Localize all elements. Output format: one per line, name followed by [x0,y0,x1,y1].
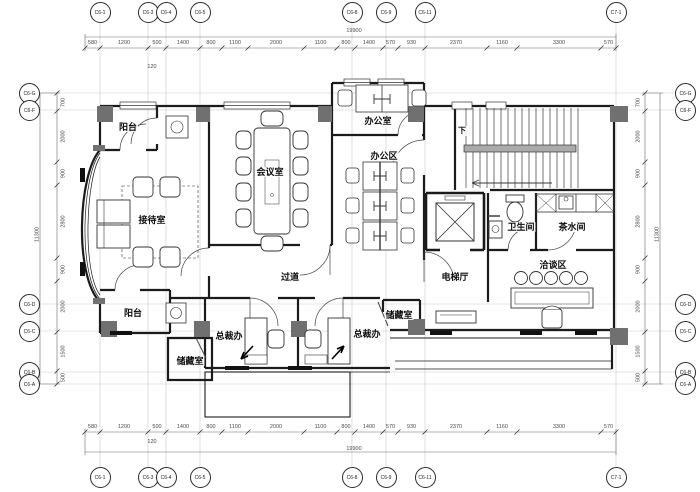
dim-left: 2800 [61,208,68,236]
dim-top: 2000 [262,40,290,47]
dim-right: 1500 [636,338,643,366]
dim-bottom: 570 [595,424,623,431]
grid-bubble-left-C6-F: C6-F [19,100,40,121]
grid-bubble-top-C6-1: C6-1 [90,2,111,23]
dim-top: 500 [143,40,171,47]
dim-right: 700 [636,88,643,116]
floor-plan-canvas: C6-1C6-3C6-4C6-5C6-8C6-9C6-11C7-1C6-1C6-… [0,0,700,492]
room-label-pantry: 茶水间 [557,222,586,232]
grid-bubble-right-C6-C: C6-C [675,321,696,342]
grid-bubble-top-C6-4: C6-4 [156,2,177,23]
room-label-storage-left: 储藏室 [175,356,204,366]
annotation-overlay: C6-1C6-3C6-4C6-5C6-8C6-9C6-11C7-1C6-1C6-… [0,0,700,492]
room-label-reception: 接待室 [137,215,166,225]
dim-bottom: 2000 [262,424,290,431]
dim-left: 900 [61,256,68,284]
dim-bottom: 580 [79,424,107,431]
dim-total-top: 19900 [339,28,369,35]
dim-bottom: 1100 [221,424,249,431]
grid-bubble-bottom-C6-9: C6-9 [376,467,397,488]
dim-right: 900 [636,160,643,188]
grid-bubble-left-C6-D: C6-D [19,294,40,315]
room-label-ceo-office-right: 总裁办 [352,329,381,339]
dim-right: 2000 [636,123,643,151]
grid-bubble-top-C6-8: C6-8 [342,2,363,23]
dim-left: 900 [61,160,68,188]
grid-bubble-right-C6-D: C6-D [675,294,696,315]
dim-top: 1160 [488,40,516,47]
dim-top: 1200 [110,40,138,47]
grid-bubble-left-C6-C: C6-C [19,321,40,342]
dim-bottom: 930 [398,424,426,431]
room-label-storage-right: 储藏室 [384,310,413,320]
dim-top: 570 [595,40,623,47]
dim-top: 2370 [442,40,470,47]
grid-bubble-bottom-C6-8: C6-8 [342,467,363,488]
dim-right: 500 [636,364,643,392]
room-label-ceo-office-left: 总裁办 [214,331,243,341]
room-label-toilet: 卫生间 [506,222,535,232]
room-label-balcony-top: 阳台 [118,122,138,132]
dim-sub-top: 120 [142,64,162,71]
grid-bubble-bottom-C6-1: C6-1 [90,467,111,488]
room-label-elevator-hall: 电梯厅 [440,272,469,282]
room-label-balcony-bottom: 阳台 [123,308,143,318]
grid-bubble-top-C6-11: C6-11 [415,2,436,23]
grid-bubble-bottom-C7-1: C7-1 [606,467,627,488]
grid-bubble-right-C6-F: C6-F [675,100,696,121]
dim-left: 1500 [61,338,68,366]
dim-bottom: 1160 [488,424,516,431]
grid-bubble-bottom-C6-11: C6-11 [415,467,436,488]
dim-right: 2000 [636,293,643,321]
dim-bottom: 3300 [545,424,573,431]
dim-top: 930 [398,40,426,47]
dim-top: 3300 [545,40,573,47]
grid-bubble-left-C6-A: C6-A [19,374,40,395]
grid-bubble-top-C6-9: C6-9 [376,2,397,23]
dim-bottom: 1400 [169,424,197,431]
room-label-office: 办公室 [363,116,392,126]
dim-bottom: 2370 [442,424,470,431]
dim-left: 2000 [61,293,68,321]
grid-bubble-bottom-C6-4: C6-4 [156,467,177,488]
dim-right: 2800 [636,208,643,236]
dim-top: 1100 [307,40,335,47]
dim-bottom: 1200 [110,424,138,431]
dim-bottom: 1100 [307,424,335,431]
room-label-office-area: 办公区 [369,151,398,161]
room-label-stair-down: 下 [457,126,467,136]
dim-bottom: 500 [143,424,171,431]
dim-top: 580 [79,40,107,47]
grid-bubble-right-C6-A: C6-A [675,374,696,395]
dim-left: 2000 [61,123,68,151]
dim-left: 700 [61,88,68,116]
dim-left: 500 [61,364,68,392]
grid-bubble-bottom-C6-5: C6-5 [190,467,211,488]
room-label-corridor: 过道 [280,272,300,282]
room-label-negotiation-area: 洽谈区 [538,260,567,270]
grid-bubble-top-C6-5: C6-5 [190,2,211,23]
dim-top: 1400 [169,40,197,47]
dim-total-bottom: 19900 [339,446,369,453]
dim-total-left: 11300 [35,221,42,249]
dim-sub-bottom: 120 [142,439,162,446]
dim-total-right: 11300 [655,221,662,249]
dim-top: 1100 [221,40,249,47]
dim-right: 900 [636,256,643,284]
grid-bubble-top-C7-1: C7-1 [606,2,627,23]
room-label-meeting-room: 会议室 [255,167,284,177]
